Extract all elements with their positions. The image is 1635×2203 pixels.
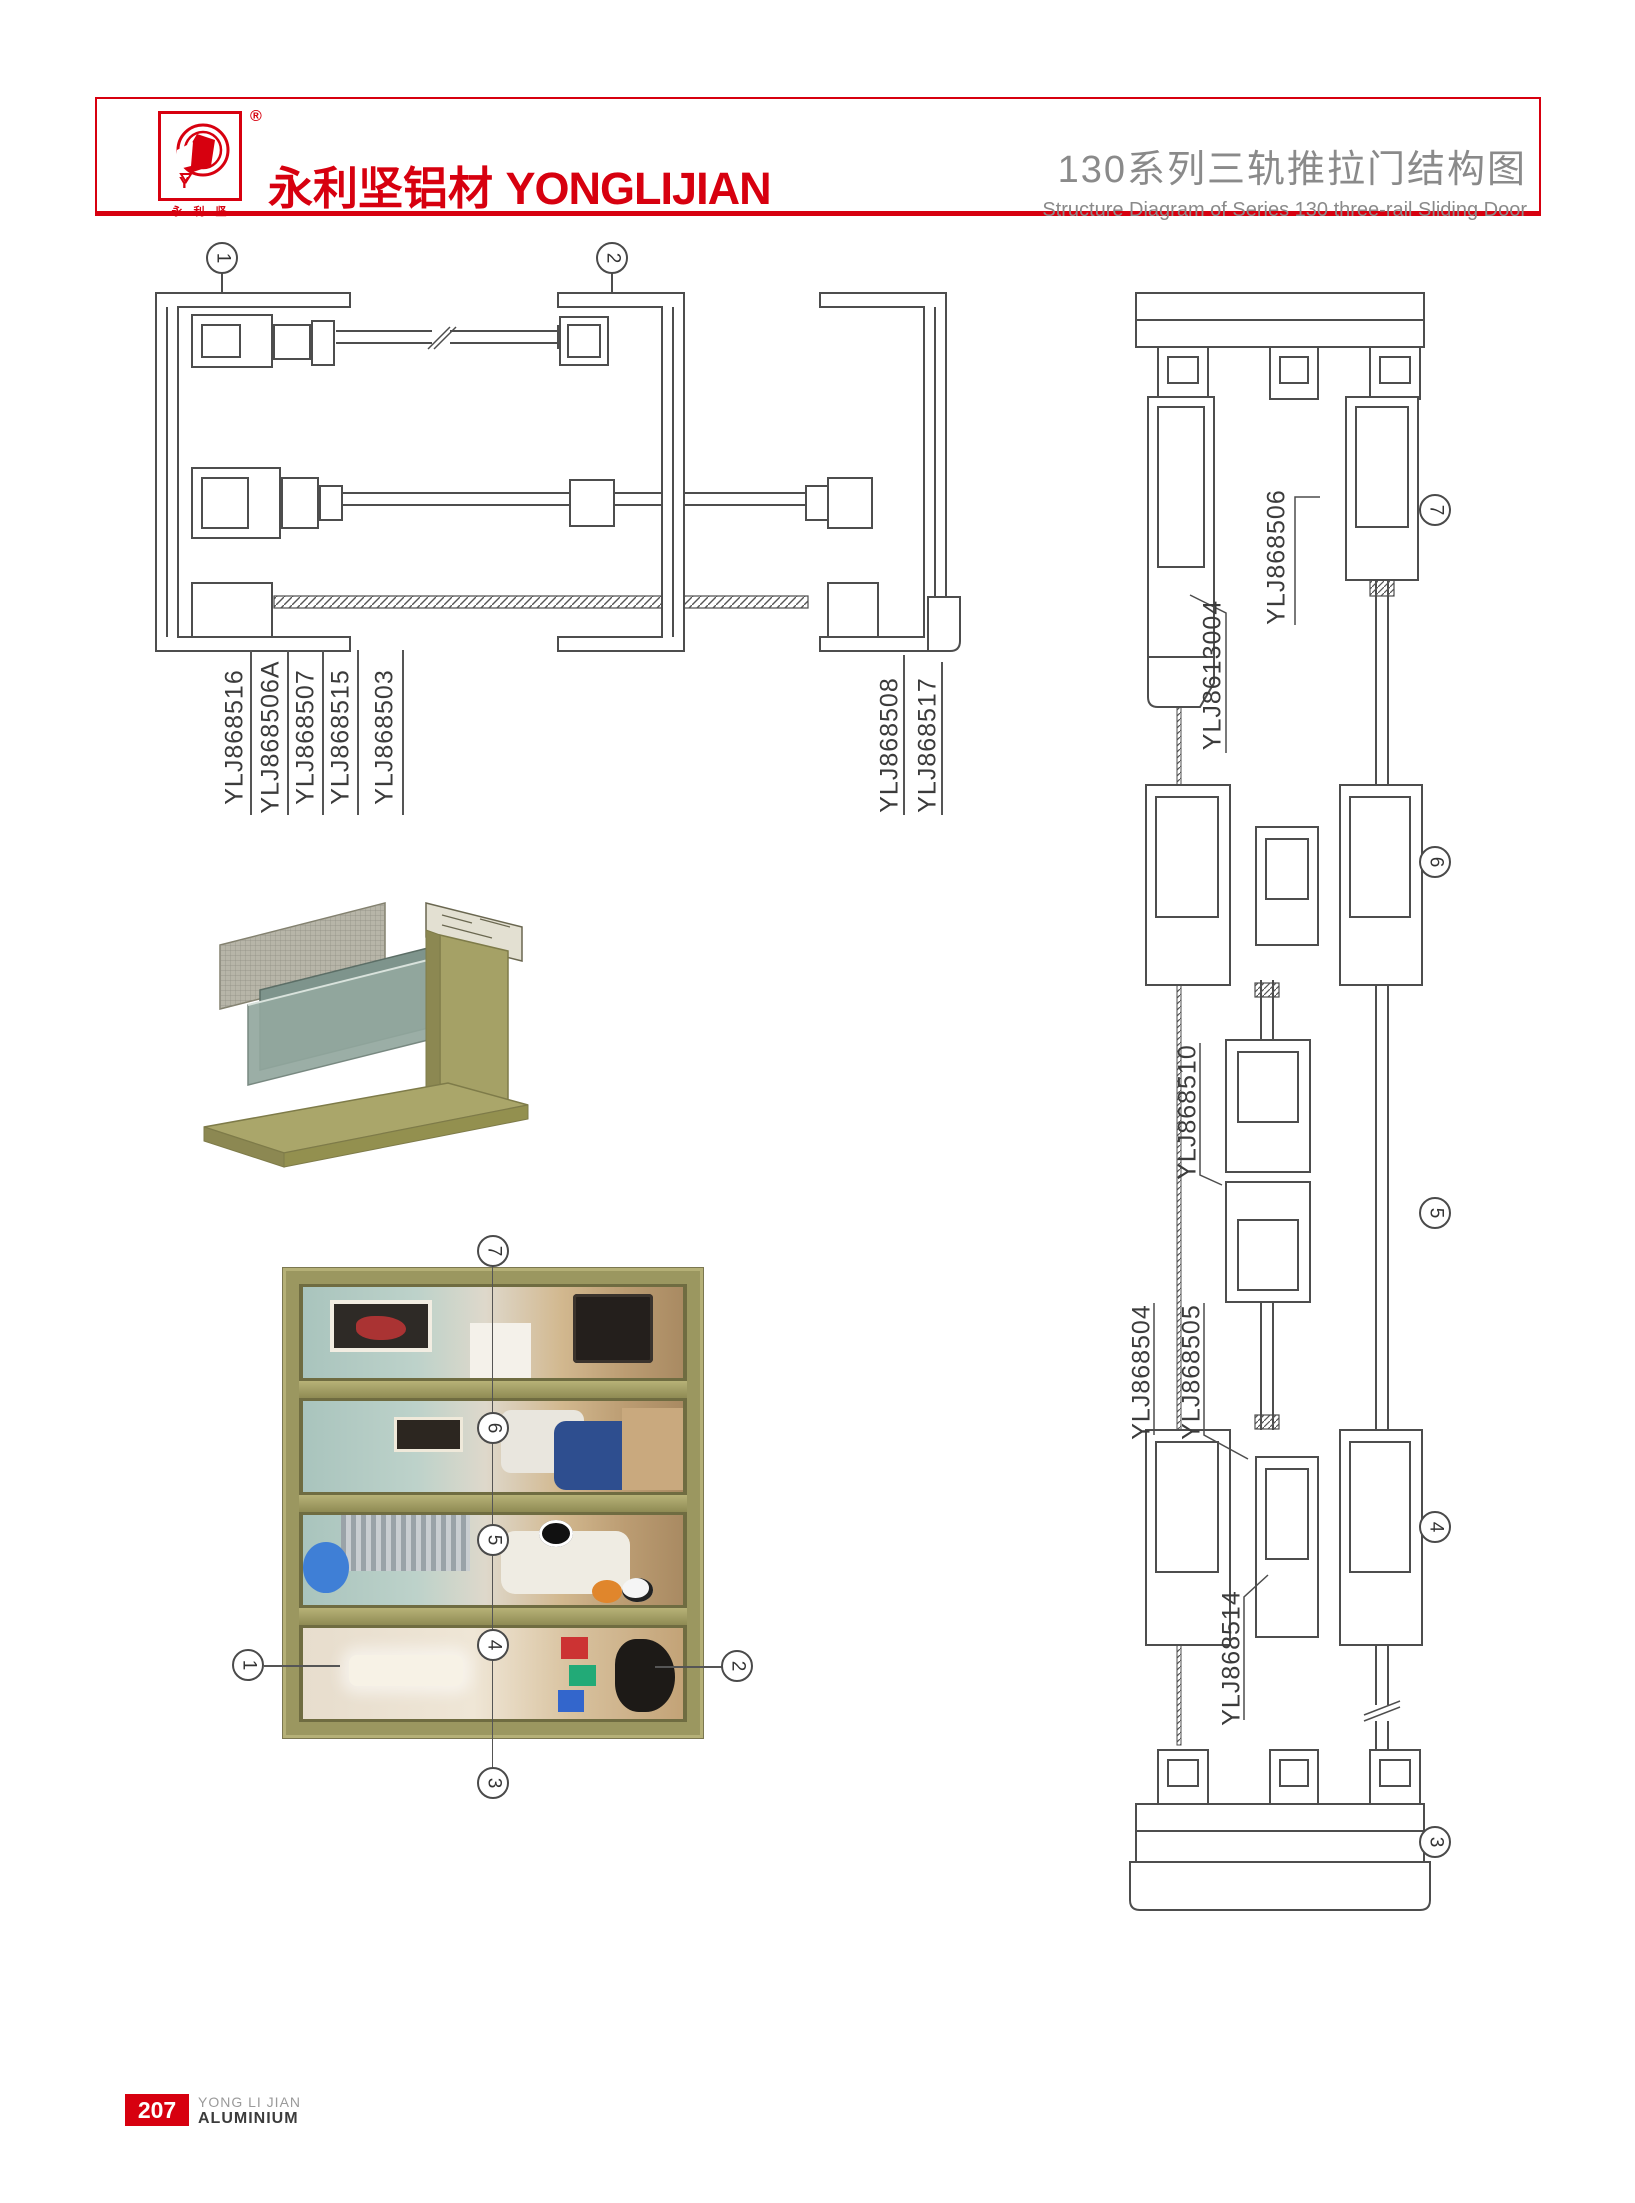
lamp-glow: [349, 1655, 463, 1686]
bed-frame-wood: [622, 1408, 683, 1490]
stool-blue: [303, 1542, 349, 1593]
wall-art-small: [394, 1417, 462, 1451]
part-label: YLJ868516: [221, 669, 250, 805]
photo-callout-4: 4: [477, 1629, 509, 1661]
art-bird: [356, 1316, 405, 1340]
section-callout-5: 5: [1419, 1197, 1451, 1229]
catalog-page: Y ® 永 利 坚 永利坚铝材 YONGLIJIAN 130系列三轨推拉门结构图…: [0, 0, 1635, 2203]
page-title-cn: 130系列三轨推拉门结构图: [1042, 138, 1527, 193]
photo-callout-1: 1: [232, 1649, 264, 1681]
leader-line: [357, 650, 359, 815]
brand-name: 永利坚铝材 YONGLIJIAN: [268, 152, 771, 217]
photo-rail: [299, 1381, 687, 1398]
toy-block: [558, 1690, 585, 1712]
application-photo: [283, 1268, 703, 1738]
door-leaf: [470, 1323, 531, 1377]
photo-pane-1: [303, 1287, 683, 1378]
section-callout-6: 6: [1419, 846, 1451, 878]
logo-subtext: 永 利 坚: [156, 203, 246, 219]
photo-callout-6: 6: [477, 1412, 509, 1444]
svg-text:Y: Y: [179, 175, 190, 192]
callout-line-left: [264, 1665, 340, 1667]
plan-callout-1: 1: [206, 242, 238, 274]
part-label: YLJ868507: [292, 669, 321, 805]
footer-brand-line2: ALUMINIUM: [198, 2110, 299, 2128]
curtain: [341, 1515, 470, 1571]
part-label: YLJ868503: [371, 669, 400, 805]
brand-name-cn: 永利坚铝材: [268, 163, 493, 214]
part-label: YLJ868504: [1128, 1304, 1157, 1440]
leader-line: [287, 650, 289, 815]
page-title-en: Structure Diagram of Series 130 three-ra…: [1042, 199, 1527, 222]
section-callout-4: 4: [1419, 1511, 1451, 1543]
photo-callout-7: 7: [477, 1235, 509, 1267]
target-pattern: [539, 1520, 573, 1547]
part-label: YLJ868515: [327, 669, 356, 805]
part-label: YLJ868510: [1174, 1044, 1203, 1180]
part-label: YLJ868517: [914, 677, 943, 813]
part-label: YLJ868506: [1263, 489, 1292, 625]
photo-rail: [299, 1608, 687, 1625]
plan-callout-2: 2: [596, 242, 628, 274]
toy-block: [569, 1665, 596, 1687]
section-callout-3: 3: [1419, 1826, 1451, 1858]
brand-name-en: YONGLIJIAN: [506, 163, 771, 214]
registered-mark: ®: [250, 108, 262, 126]
page-number-badge: 207: [125, 2094, 189, 2126]
brand-logo: Y: [158, 111, 242, 201]
page-title: 130系列三轨推拉门结构图 Structure Diagram of Serie…: [1042, 138, 1527, 222]
part-label: YLJ868508: [876, 677, 905, 813]
leader-line: [322, 650, 324, 815]
photo-callout-5: 5: [477, 1524, 509, 1556]
soccer-ball: [622, 1578, 652, 1602]
footer-brand-line1: YONG LI JIAN: [198, 2094, 301, 2110]
profile-3d-render: [190, 875, 530, 1175]
callout-line-right: [655, 1666, 723, 1668]
logo-mark-icon: Y: [167, 120, 233, 192]
part-label: YLJ868505: [1178, 1304, 1207, 1440]
basketball: [592, 1580, 622, 1604]
section-callout-7: 7: [1419, 494, 1451, 526]
leader-line: [402, 650, 404, 815]
cow-print-patch: [615, 1639, 676, 1712]
leader-line: [250, 650, 252, 815]
part-label: YLJ868506A: [257, 660, 286, 813]
part-label: YLJ868514: [1218, 1590, 1247, 1726]
callout-axis-line: [492, 1266, 493, 1769]
mirror: [573, 1294, 653, 1363]
photo-callout-2: 2: [721, 1650, 753, 1682]
photo-callout-3: 3: [477, 1767, 509, 1799]
toy-block: [561, 1637, 588, 1659]
photo-rail: [299, 1495, 687, 1512]
part-label: YLJ8613004: [1199, 600, 1228, 750]
